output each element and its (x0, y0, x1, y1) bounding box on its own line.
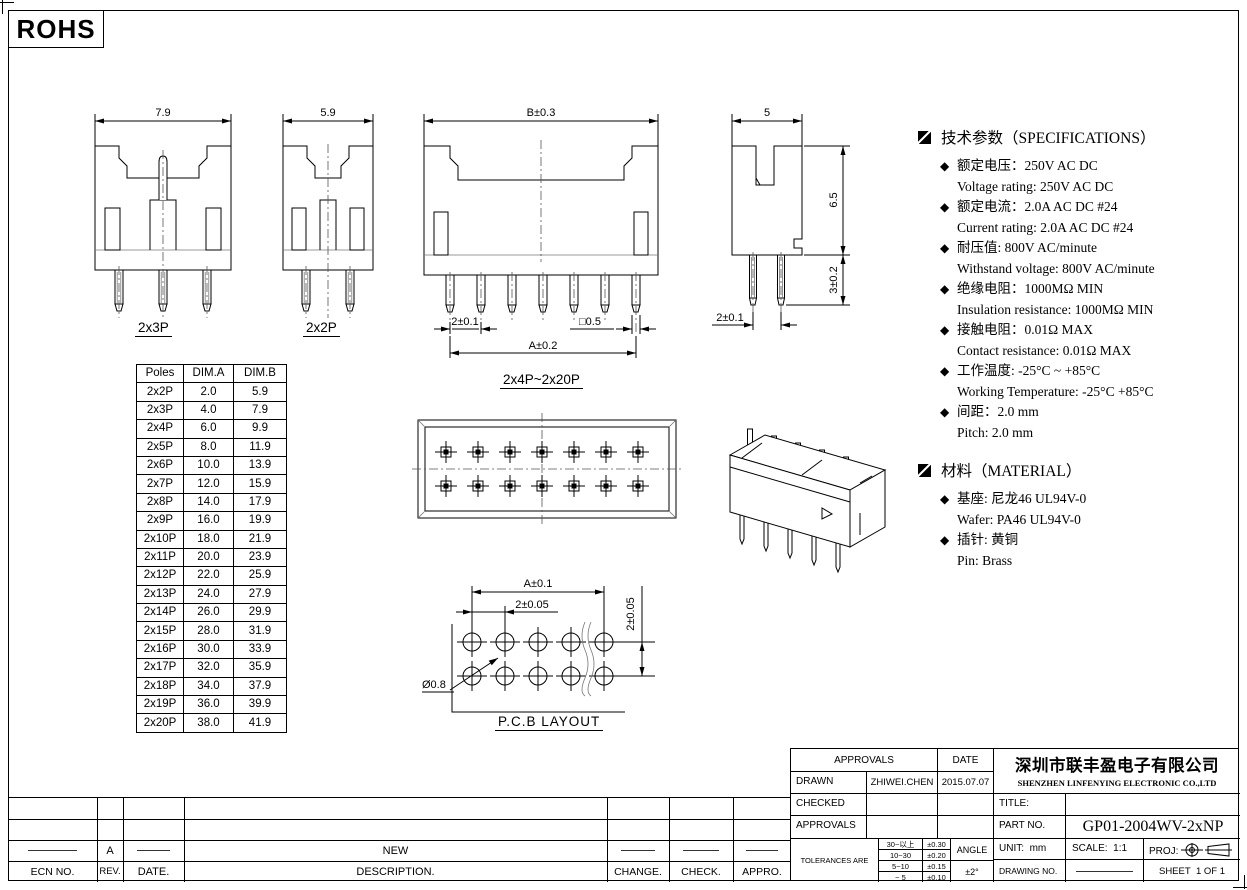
approvals-name (867, 816, 938, 839)
dash-mark (621, 850, 655, 851)
company-name-cn: 深圳市联丰盈电子有限公司 (994, 752, 1240, 776)
table-row: 2x5P8.011.9 (137, 438, 287, 456)
view-label-2x2p: 2x2P (303, 320, 340, 337)
sheet-label: SHEET (1159, 866, 1191, 877)
table-row: 2x3P4.07.9 (137, 401, 287, 419)
part-no-label: PART NO. (994, 816, 1066, 839)
rev-entry: A (97, 840, 123, 861)
third-angle-projection-icon (1181, 843, 1233, 857)
dim-label: 2±0.05 (515, 599, 549, 611)
spec-item-en: Withstand voltage: 800V AC/minute (940, 259, 1242, 280)
tolerance-range: 5~10 (879, 861, 923, 872)
spec-item-en: Working Temperature: -25°C +85°C (940, 382, 1242, 403)
sheet-cell: SHEET 1 OF 1 (1144, 860, 1240, 882)
ecn-entry (8, 840, 97, 861)
dim-label: A±0.2 (529, 340, 558, 352)
table-row: 2x10P18.021.9 (137, 530, 287, 548)
diamond-bullet-icon: ◆ (940, 530, 957, 551)
diamond-bullet-icon: ◆ (940, 320, 957, 341)
front-view-multi: B±0.3 2±0.1 □0.5 A±0.2 (410, 100, 672, 368)
table-row: 2x2P2.05.9 (137, 383, 287, 401)
section-square-icon (918, 464, 931, 477)
rev-col-header: DATE. (123, 861, 184, 882)
drawing-no-value (1066, 860, 1144, 882)
dim-label: 3±0.2 (828, 266, 840, 293)
material-item-cn: ◆基座: 尼龙46 UL94V-0 (940, 489, 1242, 510)
specifications-panel: 技术参数（SPECIFICATIONS） ◆额定电压：250V AC DC Vo… (918, 126, 1242, 571)
table-row: 2x18P34.037.9 (137, 677, 287, 695)
dash-mark (28, 850, 77, 851)
table-row: 2x14P26.029.9 (137, 604, 287, 622)
spec-item-cn: ◆接触电阻：0.01Ω MAX (940, 320, 1242, 341)
section-square-icon (918, 131, 931, 144)
unit-cell: UNIT: mm (994, 839, 1066, 860)
dash-mark (746, 850, 778, 851)
tolerance-value: ±0.20 (923, 850, 951, 861)
projection-cell: PROJ: (1144, 839, 1240, 860)
company-name-en: SHENZHEN LINFENYING ELECTRONIC CO.,LTD (994, 778, 1240, 788)
diamond-bullet-icon: ◆ (940, 489, 957, 510)
spec-item-en: Current rating: 2.0A AC DC #24 (940, 218, 1242, 239)
spec-list: ◆额定电压：250V AC DC Voltage rating: 250V AC… (940, 156, 1242, 443)
front-view-2x2p: 5.9 (268, 100, 392, 345)
specifications-title: 技术参数（SPECIFICATIONS） (918, 126, 1242, 148)
col-header: DIM.A (184, 365, 234, 383)
table-row: 2x20P38.041.9 (137, 714, 287, 732)
company-block: 深圳市联丰盈电子有限公司 SHENZHEN LINFENYING ELECTRO… (994, 749, 1240, 794)
dim-label: 6.5 (828, 192, 840, 207)
diamond-bullet-icon: ◆ (940, 361, 957, 382)
material-item-en: Pin: Brass (940, 551, 1242, 572)
drawn-date: 2015.07.07 (938, 772, 994, 794)
diamond-bullet-icon: ◆ (940, 279, 957, 300)
table-row: 2x4P6.09.9 (137, 420, 287, 438)
title-value (1066, 794, 1240, 816)
table-row: 2x9P16.019.9 (137, 512, 287, 530)
diamond-bullet-icon: ◆ (940, 156, 957, 177)
view-label-multi: 2x4P~2x20P (500, 372, 583, 389)
material-title: 材料（MATERIAL） (918, 459, 1242, 481)
corner-mark (2, 0, 3, 14)
dash-mark (683, 850, 718, 851)
rev-col-header: APPRO. (733, 861, 791, 882)
spec-item-cn: ◆额定电流：2.0A AC DC #24 (940, 197, 1242, 218)
material-item-cn: ◆插针: 黄铜 (940, 530, 1242, 551)
rev-col-header: DESCRIPTION. (184, 861, 607, 882)
pcb-holes (457, 627, 619, 691)
dim-label: A±0.1 (524, 578, 553, 590)
dim-label: 5 (764, 107, 770, 119)
dim-label: Ø0.8 (422, 679, 446, 691)
dimension-table: Poles DIM.A DIM.B 2x2P2.05.9 2x3P4.07.9 … (136, 364, 287, 733)
sheet-value: 1 OF 1 (1196, 866, 1225, 877)
spec-item-cn: ◆绝缘电阻：1000MΩ MIN (940, 279, 1242, 300)
proj-label: PROJ: (1149, 846, 1178, 857)
diamond-bullet-icon: ◆ (940, 238, 957, 259)
tolerance-value: ±0.15 (923, 861, 951, 872)
unit-label: UNIT: (999, 843, 1024, 854)
rohs-logo-text: ROHS (16, 14, 95, 45)
isometric-view (702, 383, 902, 598)
check-entry (669, 840, 733, 861)
approvals-header: APPROVALS (791, 749, 938, 772)
tolerance-value: ±0.10 (923, 872, 951, 882)
dim-label: □0.5 (579, 316, 601, 328)
dim-label: 2±0.1 (716, 312, 743, 324)
dash-mark (137, 850, 171, 851)
col-header: Poles (137, 365, 184, 383)
checked-name (867, 794, 938, 816)
scale-value: 1:1 (1113, 843, 1127, 854)
table-header-row: Poles DIM.A DIM.B (137, 365, 287, 383)
rev-col-header: REV. (97, 861, 123, 882)
revision-table: A NEW ECN NO. REV. DATE. DESCRIPTION. CH… (8, 797, 791, 881)
table-row: 2x17P32.035.9 (137, 659, 287, 677)
part-no-value: GP01-2004WV-2xNP (1066, 816, 1240, 839)
tolerance-range: 30~以上 (879, 839, 923, 850)
table-row: 2x13P24.027.9 (137, 585, 287, 603)
view-label-pcb: P.C.B LAYOUT (495, 714, 603, 731)
dim-label: 2±0.05 (625, 597, 637, 631)
dim-label: 5.9 (320, 107, 335, 119)
change-entry (607, 840, 669, 861)
table-row: 2x6P10.013.9 (137, 456, 287, 474)
spec-item-en: Insulation resistance: 1000MΩ MIN (940, 300, 1242, 321)
top-view (412, 413, 682, 525)
scale-cell: SCALE: 1:1 (1066, 839, 1144, 860)
table-row: 2x16P30.033.9 (137, 640, 287, 658)
col-header: DIM.B (234, 365, 287, 383)
table-row: 2x19P36.039.9 (137, 696, 287, 714)
spec-item-cn: ◆间距：2.0 mm (940, 402, 1242, 423)
unit-value: mm (1030, 843, 1047, 854)
title-label: TITLE: (994, 794, 1066, 816)
material-list: ◆基座: 尼龙46 UL94V-0 Wafer: PA46 UL94V-0 ◆插… (940, 489, 1242, 571)
approvals-date (938, 816, 994, 839)
drawing-sheet: ROHS 7.9 2x3P 5.9 (0, 0, 1247, 890)
dim-label: 7.9 (155, 107, 170, 119)
drawn-name: ZHIWEI.CHEN (867, 772, 938, 794)
diamond-bullet-icon: ◆ (940, 197, 957, 218)
spec-item-en: Contact resistance: 0.01Ω MAX (940, 341, 1242, 362)
tolerance-range: 10~30 (879, 850, 923, 861)
table-row: 2x8P14.017.9 (137, 493, 287, 511)
checked-date (938, 794, 994, 816)
view-label-2x3p: 2x3P (135, 320, 172, 337)
tolerances-label: TOLERANCES ARE (791, 839, 879, 882)
dim-label: B±0.3 (527, 107, 556, 119)
material-item-en: Wafer: PA46 UL94V-0 (940, 510, 1242, 531)
pins (750, 255, 785, 305)
spec-item-en: Pitch: 2.0 mm (940, 423, 1242, 444)
spec-item-cn: ◆工作温度: -25°C ~ +85°C (940, 361, 1242, 382)
table-row: 2x15P28.031.9 (137, 622, 287, 640)
tolerance-value: ±0.30 (923, 839, 951, 850)
drawing-no-label: DRAWING NO. (994, 860, 1066, 882)
date-header: DATE (938, 749, 994, 772)
rev-col-header: CHECK. (669, 861, 733, 882)
angle-value: ±2° (951, 861, 994, 882)
diamond-bullet-icon: ◆ (940, 402, 957, 423)
drawn-label: DRAWN (791, 772, 867, 794)
tolerance-range: ~ 5 (879, 872, 923, 882)
corner-mark (1244, 875, 1245, 889)
spec-item-cn: ◆耐压值: 800V AC/minute (940, 238, 1242, 259)
spec-item-en: Voltage rating: 250V AC DC (940, 177, 1242, 198)
table-row: 2x11P20.023.9 (137, 548, 287, 566)
appro-entry (733, 840, 791, 861)
rev-col-header: CHANGE. (607, 861, 669, 882)
table-row: 2x12P22.025.9 (137, 567, 287, 585)
dash-mark (1076, 871, 1134, 872)
front-view-2x3p: 7.9 (78, 100, 248, 345)
side-view: 5 6.5 3±0.2 2±0.1 (710, 100, 870, 340)
checked-label: CHECKED (791, 794, 867, 816)
date-entry (123, 840, 184, 861)
spec-item-cn: ◆额定电压：250V AC DC (940, 156, 1242, 177)
table-row: 2x7P12.015.9 (137, 475, 287, 493)
description-entry: NEW (184, 840, 607, 861)
rev-col-header: ECN NO. (8, 861, 97, 882)
rohs-logo: ROHS (8, 10, 104, 48)
dim-label: 2±0.1 (451, 316, 478, 328)
approvals-label: APPROVALS (791, 816, 867, 839)
angle-label: ANGLE (951, 839, 994, 861)
title-block: APPROVALS DATE DRAWN ZHIWEI.CHEN 2015.07… (790, 748, 1239, 881)
scale-label: SCALE: (1072, 843, 1108, 854)
